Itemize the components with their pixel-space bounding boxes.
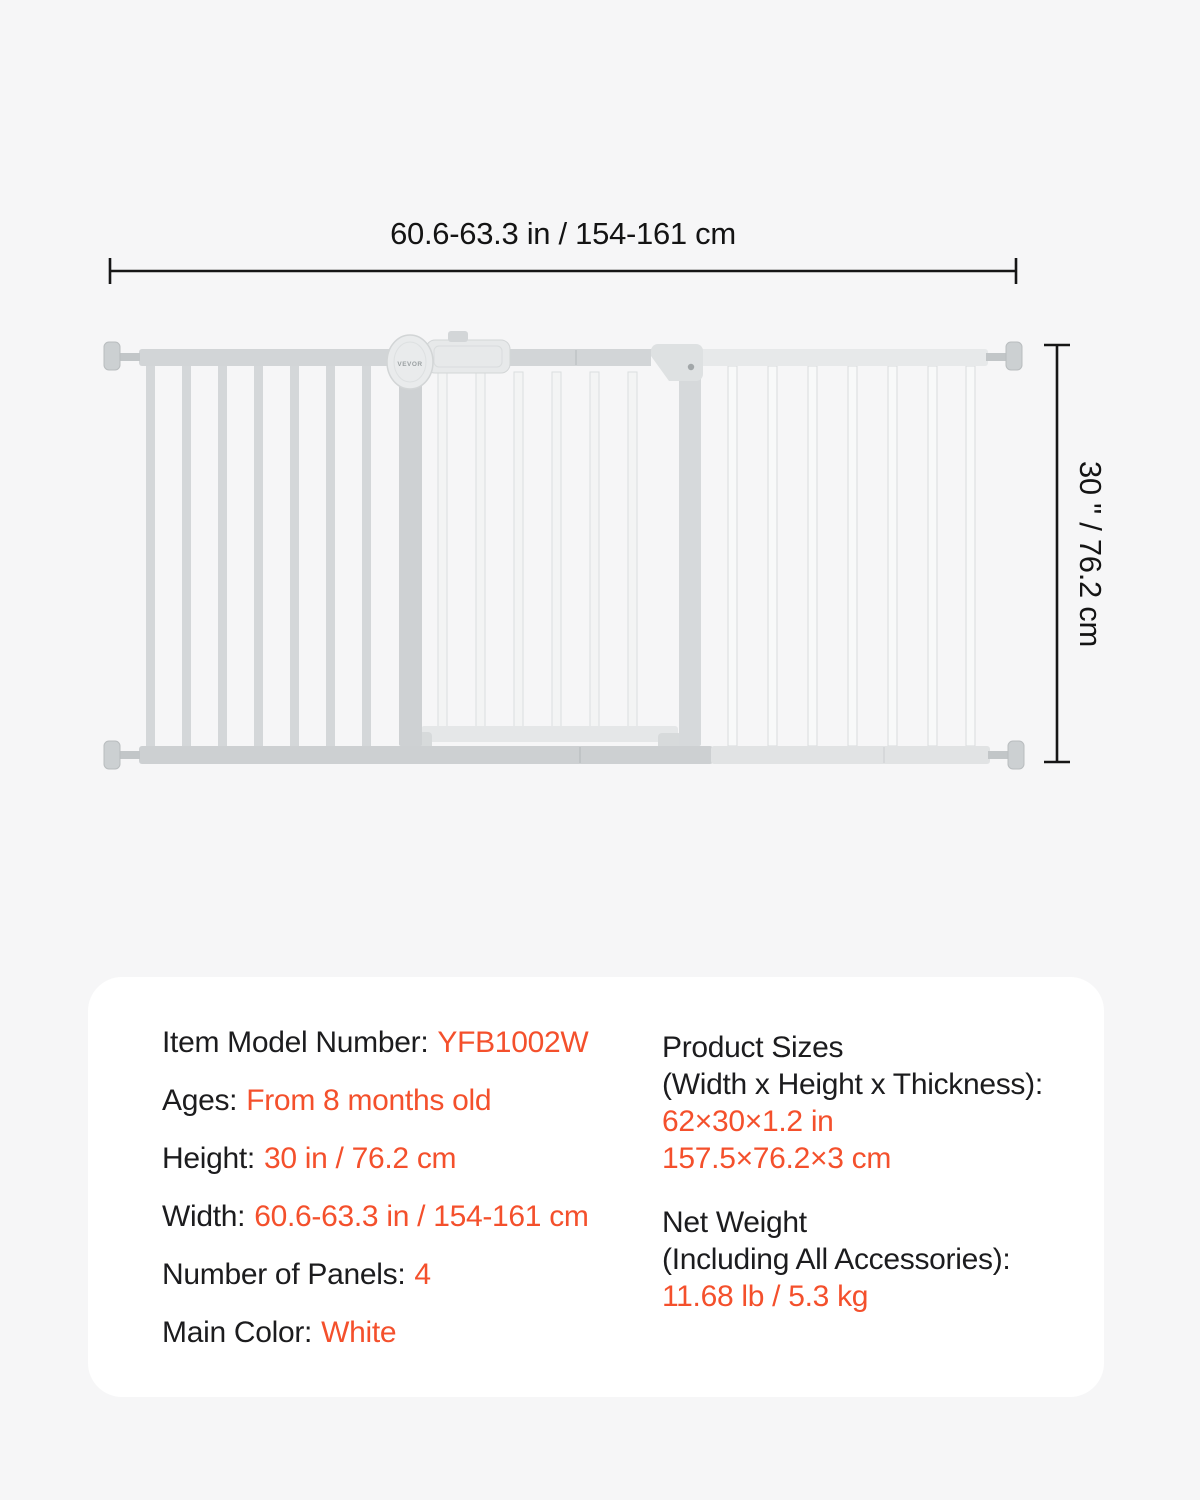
spec-value: YFB1002W [437,1026,588,1059]
gate-left-panel-bars [146,366,371,746]
spec-block-net-weight: Net Weight (Including All Accessories): … [662,1204,1043,1315]
spec-label: Width: [162,1200,245,1233]
spec-block-product-sizes: Product Sizes (Width x Height x Thicknes… [662,1029,1043,1177]
gate-right-panel-bars [728,366,975,746]
spec-list-right: Product Sizes (Width x Height x Thicknes… [662,1029,1043,1315]
pressure-knob-bottom-right [988,741,1024,769]
spec-label: Number of Panels: [162,1258,405,1291]
gate-top-rail [139,349,988,366]
width-dimension-line [110,258,1016,284]
gate-handle [426,331,510,373]
gate-door-bottom-rail [421,726,678,742]
spec-heading-line: Net Weight [662,1204,1043,1241]
pressure-knob-bottom-left [104,741,140,769]
handle-release-button [448,331,468,342]
spec-heading-line: (Including All Accessories): [662,1241,1043,1278]
spec-row-color: Main Color:White [162,1317,589,1348]
gate-bottom-rail [139,746,990,764]
gate-latch-post [399,366,422,746]
height-dimension-line [1044,345,1070,762]
spec-value-line: 62×30×1.2 in [662,1103,1043,1140]
spec-value: 4 [414,1258,430,1291]
gate-hinge-bracket [651,344,703,381]
spec-heading-line: (Width x Height x Thickness): [662,1066,1043,1103]
spec-row-ages: Ages:From 8 months old [162,1085,589,1116]
width-dimension-label: 60.6-63.3 in / 154-161 cm [110,216,1016,252]
spec-label: Height: [162,1142,255,1175]
spec-value-line: 157.5×76.2×3 cm [662,1140,1043,1177]
spec-value: 60.6-63.3 in / 154-161 cm [254,1200,588,1233]
spec-label: Item Model Number: [162,1026,428,1059]
height-dimension-label: 30 " / 76.2 cm [1070,339,1110,769]
pressure-knob-top-left [104,342,140,370]
spec-panel: Item Model Number:YFB1002W Ages:From 8 m… [88,977,1104,1397]
spec-label: Ages: [162,1084,237,1117]
spec-value: From 8 months old [246,1084,491,1117]
spec-value-line: 11.68 lb / 5.3 kg [662,1278,1043,1315]
gate-diagram: VEVOR [0,0,1200,900]
gate-hinge-post [679,362,701,746]
spec-row-height: Height:30 in / 76.2 cm [162,1143,589,1174]
spec-label: Main Color: [162,1316,312,1349]
spec-row-panels: Number of Panels:4 [162,1259,589,1290]
spec-value: White [321,1316,396,1349]
spec-heading-line: Product Sizes [662,1029,1043,1066]
brand-logo: VEVOR [397,361,422,368]
spec-row-width: Width:60.6-63.3 in / 154-161 cm [162,1201,589,1232]
spec-value: 30 in / 76.2 cm [264,1142,456,1175]
product-spec-sheet: VEVOR 60.6-63.3 in / 154-161 cm 30 " / 7… [0,0,1200,1500]
gate-door-bars [438,372,637,727]
spec-list-left: Item Model Number:YFB1002W Ages:From 8 m… [162,1027,589,1348]
gate-latch-hub: VEVOR [387,335,433,389]
spec-row-model-number: Item Model Number:YFB1002W [162,1027,589,1058]
pressure-knob-top-right [986,342,1022,370]
